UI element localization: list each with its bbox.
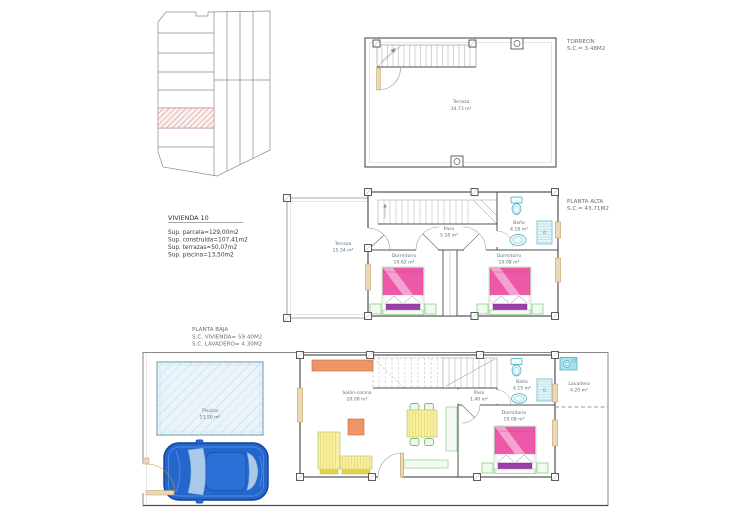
- window: [555, 222, 560, 238]
- staircase: [378, 200, 497, 224]
- salon-area: 20.08 m²: [347, 397, 368, 403]
- kitchen-island: [348, 419, 364, 435]
- washing-machine-icon: [560, 358, 577, 371]
- planta-alta-area-label: S.C.= 43.71M2: [567, 206, 609, 212]
- torreon-title: TORREON: [566, 39, 595, 45]
- torreon-terraza-label: Terraza: [452, 99, 470, 105]
- baja-paso-label: Paso: [474, 390, 485, 396]
- alta-paso-label: Paso: [444, 226, 455, 232]
- piscina-label: Piscina: [202, 408, 218, 414]
- salon-label: Salón-cocina: [342, 389, 371, 396]
- alta-bano-label: Baño: [513, 220, 525, 226]
- lavadero-area: 4.20 m²: [570, 388, 588, 394]
- planta-baja-plan: PLANTA BAJA S.C. VIVIENDA= 59.40M2 S.C. …: [142, 327, 609, 506]
- vivienda-title: VIVIENDA 10: [168, 214, 209, 222]
- alta-bano-area: 4.18 m²: [510, 227, 528, 233]
- highlighted-plot: [158, 108, 214, 128]
- window: [552, 420, 557, 446]
- sink-icon: [510, 235, 526, 246]
- piscina-area: 13.50 m²: [200, 415, 221, 421]
- toilet-icon: [511, 359, 522, 377]
- sup-terrazas: Sup. terrazas=50,07m2: [168, 245, 237, 251]
- kitchen-counter: [312, 360, 373, 371]
- alta-dorm2-area: 10.08 m²: [499, 260, 520, 266]
- floor-plan-drawing: Terraza 34.73 m² TORREON S.C.= 3.48M2 VI…: [0, 0, 756, 528]
- torreon-terraza-area: 34.73 m²: [451, 106, 472, 112]
- cad-canvas: Terraza 34.73 m² TORREON S.C.= 3.48M2 VI…: [0, 0, 756, 528]
- alta-terraza-label: Terraza: [334, 241, 352, 247]
- planta-baja-line1: S.C. VIVIENDA= 59.40M2: [192, 335, 262, 341]
- alta-paso-area: 5.18 m²: [440, 233, 458, 239]
- baja-dorm-area: 10.08 m²: [504, 417, 525, 423]
- baja-dorm-label: Dormitorio: [502, 410, 527, 416]
- torreon-area-label: S.C.= 3.48M2: [567, 46, 605, 52]
- baja-bano-area: 4.15 m²: [513, 386, 531, 392]
- sup-parcela: Sup. parcela=129,00m2: [168, 230, 239, 236]
- sup-construida: Sup. construida=107,41m2: [168, 238, 248, 244]
- sink-icon: [512, 394, 527, 404]
- window: [365, 264, 370, 290]
- drain-pillar-top: [511, 38, 523, 49]
- closet: [443, 250, 457, 316]
- swimming-pool: Piscina 13.50 m²: [157, 362, 263, 435]
- planta-baja-title: PLANTA BAJA: [192, 327, 228, 333]
- window: [297, 388, 302, 422]
- car: [164, 440, 268, 503]
- side-mirror: [196, 440, 203, 444]
- alta-dorm1-label: Dormitorio: [392, 253, 417, 259]
- planta-baja-line2: S.C. LAVADERO= 4.30M2: [192, 342, 262, 348]
- window: [552, 384, 557, 402]
- window: [555, 258, 560, 282]
- baja-paso-area: 1.40 m²: [470, 397, 488, 403]
- counter: [446, 407, 457, 451]
- alta-dorm2-label: Dormitorio: [497, 253, 522, 259]
- alta-dorm1-area: 10.62 m²: [394, 260, 415, 266]
- toilet-icon: [511, 197, 522, 215]
- car-roof: [206, 453, 246, 491]
- sup-piscina: Sup. piscina=13,50m2: [168, 253, 234, 259]
- baja-bano-label: Baño: [516, 379, 528, 385]
- side-mirror: [196, 499, 203, 503]
- shower-icon: [537, 379, 552, 401]
- alta-terraza-area: 15.34 m²: [333, 248, 354, 254]
- shower-icon: [537, 221, 552, 244]
- drain-pillar-bottom: [451, 156, 463, 167]
- bench: [404, 460, 448, 468]
- lavadero-label: Lavadero: [568, 381, 589, 387]
- planta-alta-title: PLANTA ALTA: [567, 199, 603, 205]
